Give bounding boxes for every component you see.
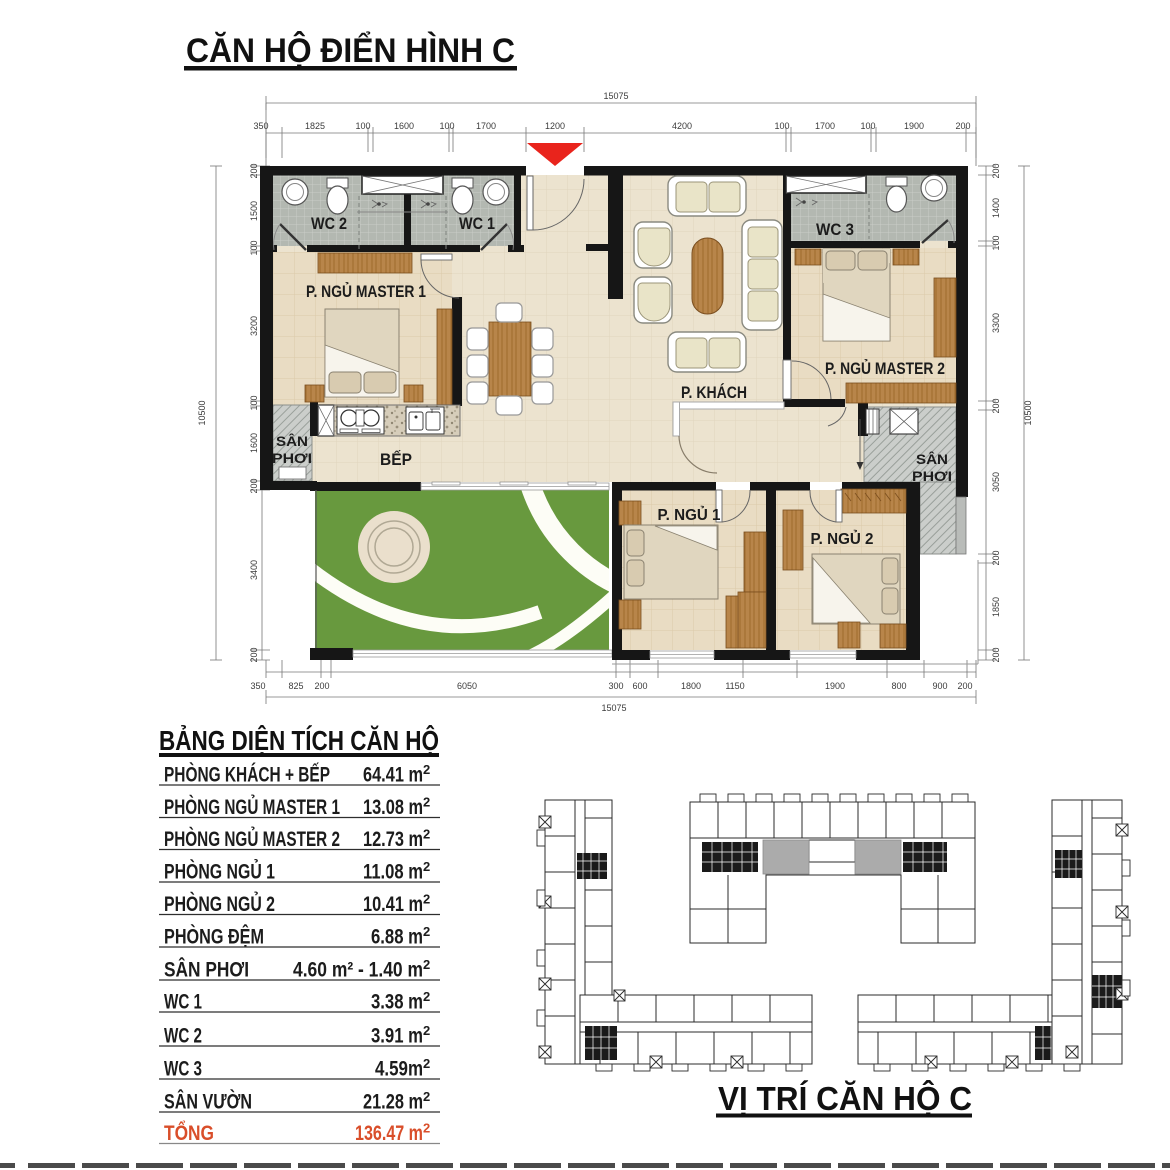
svg-text:6050: 6050 [457,681,477,691]
svg-text:P. NGỦ MASTER 1: P. NGỦ MASTER 1 [306,282,426,301]
svg-text:3.91 m: 3.91 m [371,1025,423,1048]
svg-text:100: 100 [991,235,1001,250]
svg-text:1600: 1600 [249,433,259,453]
svg-text:PHÒNG NGỦ MASTER 1: PHÒNG NGỦ MASTER 1 [164,795,340,819]
svg-text:1825: 1825 [305,121,325,131]
svg-text:2: 2 [423,762,430,777]
svg-text:PHƠI: PHƠI [912,468,952,484]
svg-text:PHÒNG NGỦ 2: PHÒNG NGỦ 2 [164,892,275,916]
svg-text:PHÒNG ĐỆM: PHÒNG ĐỆM [164,925,264,949]
svg-text:CĂN HỘ ĐIỂN HÌNH C: CĂN HỘ ĐIỂN HÌNH C [186,31,515,70]
svg-text:PHƠI: PHƠI [272,450,312,466]
svg-text:200: 200 [991,647,1001,662]
svg-text:2: 2 [423,1023,430,1038]
svg-text:2: 2 [423,989,430,1004]
svg-text:1150: 1150 [725,681,744,691]
svg-text:SÂN: SÂN [276,432,308,449]
svg-text:1700: 1700 [815,121,835,131]
svg-text:BẢNG DIỆN TÍCH CĂN HỘ: BẢNG DIỆN TÍCH CĂN HỘ [159,724,439,756]
svg-text:2: 2 [423,827,430,842]
svg-text:SÂN: SÂN [916,450,948,467]
svg-text:100: 100 [355,121,370,131]
svg-text:1200: 1200 [545,121,565,131]
svg-text:3400: 3400 [249,560,259,580]
svg-text:WC 3: WC 3 [164,1058,202,1081]
svg-text:21.28 m: 21.28 m [363,1091,423,1114]
svg-text:100: 100 [774,121,789,131]
svg-text:WC 1: WC 1 [164,991,202,1014]
svg-text:2: 2 [423,1056,430,1071]
svg-text:P. NGỦ 2: P. NGỦ 2 [811,529,874,548]
svg-text:1400: 1400 [991,198,1001,218]
svg-text:100: 100 [249,240,259,255]
svg-text:WC 2: WC 2 [311,214,347,233]
svg-text:800: 800 [891,681,906,691]
svg-text:100: 100 [249,395,259,410]
svg-text:TỔNG: TỔNG [164,1121,214,1145]
svg-text:3050: 3050 [991,472,1001,492]
svg-text:12.73 m: 12.73 m [363,828,423,851]
svg-text:350: 350 [253,121,268,131]
svg-text:2: 2 [423,1089,430,1104]
svg-text:2: 2 [423,924,430,939]
svg-text:4.60 m² - 1.40 m: 4.60 m² - 1.40 m [293,959,423,982]
svg-text:4200: 4200 [672,121,692,131]
svg-text:PHÒNG NGỦ 1: PHÒNG NGỦ 1 [164,860,275,884]
svg-text:10.41 m: 10.41 m [363,893,423,916]
svg-text:P. NGỦ MASTER 2: P. NGỦ MASTER 2 [825,359,945,378]
svg-text:VỊ TRÍ CĂN HỘ C: VỊ TRÍ CĂN HỘ C [718,1079,972,1117]
svg-text:WC 2: WC 2 [164,1025,202,1048]
svg-text:3300: 3300 [991,313,1001,333]
svg-text:13.08 m: 13.08 m [363,796,423,819]
svg-text:WC 1: WC 1 [459,214,495,233]
svg-text:1900: 1900 [825,681,845,691]
svg-text:4.59m: 4.59m [375,1058,423,1081]
svg-text:1850: 1850 [991,597,1001,617]
svg-text:200: 200 [991,163,1001,178]
svg-text:1500: 1500 [249,201,259,221]
svg-text:200: 200 [991,550,1001,565]
svg-text:PHÒNG KHÁCH + BẾP: PHÒNG KHÁCH + BẾP [164,763,330,787]
svg-text:1600: 1600 [394,121,414,131]
svg-text:1800: 1800 [681,681,701,691]
svg-text:136.47 m: 136.47 m [355,1122,423,1145]
svg-text:BẾP: BẾP [380,450,412,469]
svg-text:SÂN PHƠI: SÂN PHƠI [164,958,249,982]
svg-text:200: 200 [249,163,259,178]
svg-text:1700: 1700 [476,121,496,131]
svg-text:P. NGỦ 1: P. NGỦ 1 [658,505,721,524]
svg-text:P. KHÁCH: P. KHÁCH [681,383,747,402]
svg-text:WC 3: WC 3 [816,220,854,239]
svg-text:2: 2 [423,859,430,874]
svg-text:SÂN VƯỜN: SÂN VƯỜN [164,1090,252,1114]
svg-text:825: 825 [288,681,303,691]
svg-text:100: 100 [439,121,454,131]
svg-text:6.88 m: 6.88 m [371,926,423,949]
svg-text:350: 350 [250,681,265,691]
svg-text:64.41 m: 64.41 m [363,764,423,787]
svg-text:10500: 10500 [1023,400,1033,425]
svg-text:1900: 1900 [904,121,924,131]
svg-text:200: 200 [955,121,970,131]
svg-text:2: 2 [423,795,430,810]
svg-text:3200: 3200 [249,316,259,336]
svg-text:2: 2 [423,1121,430,1136]
svg-text:15075: 15075 [603,91,628,101]
svg-text:100: 100 [860,121,875,131]
svg-text:2: 2 [423,892,430,907]
svg-text:200: 200 [314,681,329,691]
svg-text:300: 300 [608,681,623,691]
svg-text:900: 900 [932,681,947,691]
svg-text:15075: 15075 [601,703,626,713]
svg-text:3.38 m: 3.38 m [371,991,423,1014]
svg-text:10500: 10500 [197,400,207,425]
svg-text:200: 200 [249,647,259,662]
svg-text:2: 2 [423,957,430,972]
svg-text:600: 600 [632,681,647,691]
svg-text:200: 200 [249,478,259,493]
svg-text:11.08 m: 11.08 m [363,861,423,884]
svg-text:PHÒNG NGỦ MASTER 2: PHÒNG NGỦ MASTER 2 [164,827,340,851]
svg-text:200: 200 [991,398,1001,413]
svg-text:200: 200 [957,681,972,691]
